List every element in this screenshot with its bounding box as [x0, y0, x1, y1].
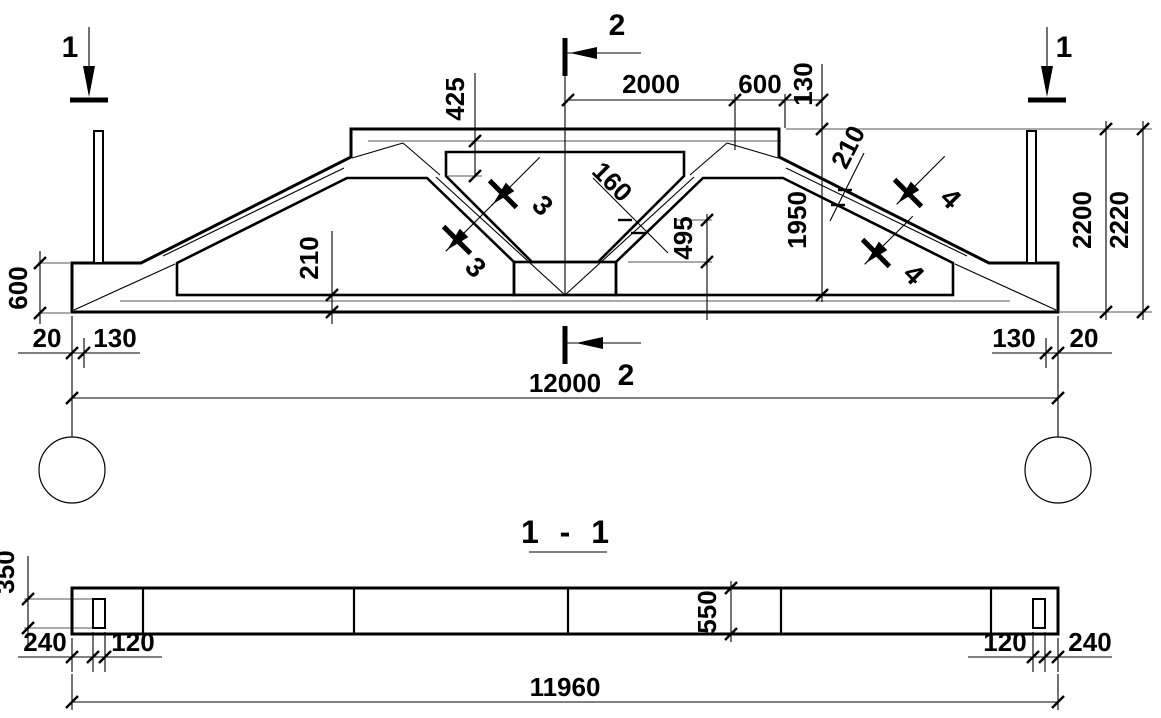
right-end-post — [1027, 131, 1036, 263]
section-mark-2-bottom-label: 2 — [618, 359, 635, 392]
section-beam-outline — [72, 588, 1058, 634]
section-mark-3-upper-label: 3 — [526, 189, 559, 222]
dim-550-label: 550 — [692, 590, 722, 633]
dim-495-label: 495 — [668, 216, 698, 259]
dim-130-top-label: 130 — [788, 62, 818, 105]
section-mark-4-upper-label: 4 — [934, 182, 967, 215]
section-arrow-left-icon — [576, 337, 603, 349]
grid-axis-bubble-right — [1025, 437, 1091, 503]
left-end-post — [94, 131, 103, 263]
dim-160-label: 160 — [586, 156, 638, 208]
section-arrow-down-icon — [1041, 66, 1053, 97]
dim-20-right-label: 20 — [1070, 323, 1099, 353]
dim-130-right-label: 130 — [992, 323, 1035, 353]
drawing-canvas: 1 1 2 2 3 3 4 4 2000 600 130 425 210 160… — [0, 0, 1161, 718]
embedded-plate-left — [93, 599, 105, 628]
dim-11960-label: 11960 — [530, 672, 601, 702]
dim-130-left-label: 130 — [93, 323, 136, 353]
section-mark-2-top-label: 2 — [609, 9, 626, 42]
embedded-plate-right — [1033, 599, 1045, 628]
section-mark-1-right-label: 1 — [1056, 31, 1073, 64]
truss-drawing-svg: 1 1 2 2 3 3 4 4 2000 600 130 425 210 160… — [0, 0, 1161, 718]
dim-425-label: 425 — [440, 77, 470, 120]
dim-350-label: 350 — [0, 550, 20, 593]
section-arrow-left-icon — [570, 47, 597, 59]
section-mark-4-lower-label: 4 — [897, 258, 930, 291]
dim-2200-label: 2200 — [1067, 191, 1097, 249]
dim-210-bottom-label: 210 — [294, 236, 324, 279]
dim-600-top-label: 600 — [738, 69, 781, 99]
dim-120-left-label: 120 — [111, 627, 154, 657]
grid-axis-bubble-left — [39, 437, 105, 503]
section-mark-3-lower-label: 3 — [459, 251, 492, 284]
dim-240-right-label: 240 — [1068, 627, 1111, 657]
dim-1950-label: 1950 — [782, 191, 812, 249]
section-title: 1 - 1 — [521, 514, 615, 550]
section-arrow-down-icon — [83, 66, 95, 97]
dim-120-right-label: 120 — [983, 627, 1026, 657]
dim-240-left-label: 240 — [23, 627, 66, 657]
dim-12000-label: 12000 — [529, 368, 601, 398]
dim-2000-label: 2000 — [622, 69, 680, 99]
dim-20-left-label: 20 — [33, 323, 62, 353]
dim-600-left-label: 600 — [3, 266, 33, 309]
dim-2220-label: 2220 — [1104, 191, 1134, 249]
section-mark-1-left-label: 1 — [62, 31, 79, 64]
